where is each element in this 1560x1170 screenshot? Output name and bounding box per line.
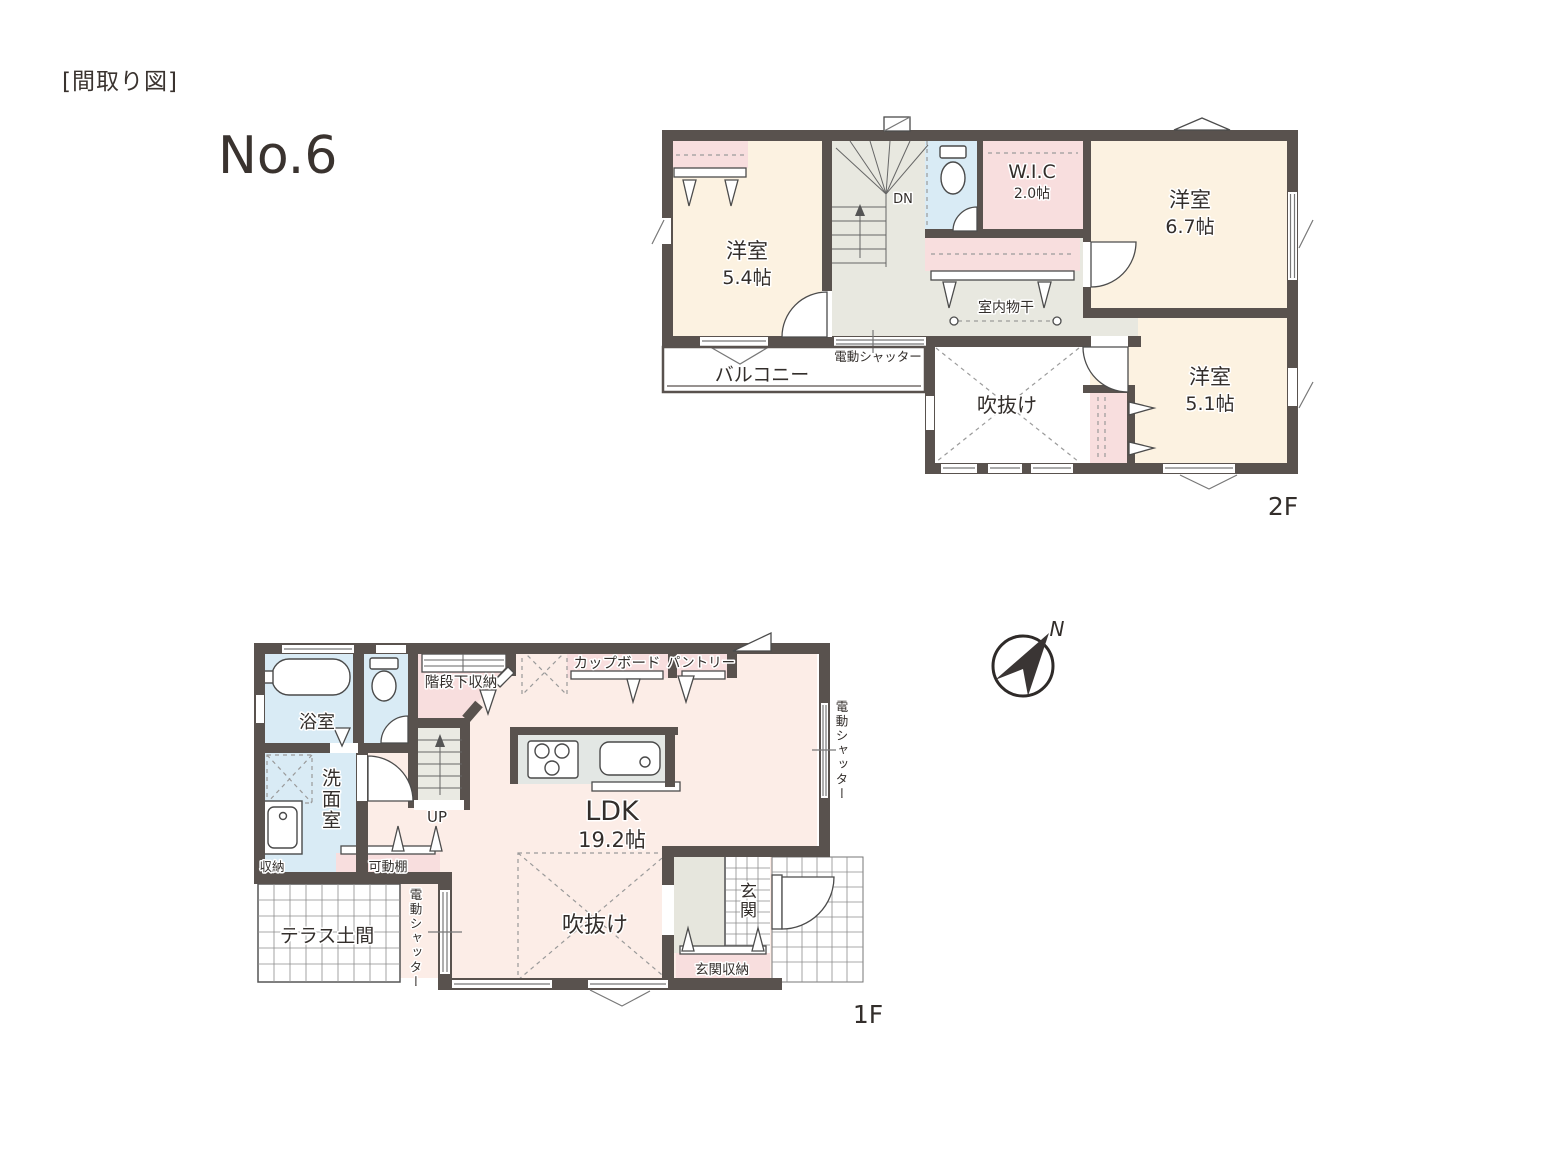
window-void-left	[926, 396, 934, 430]
windows-void-bottom	[941, 464, 1073, 473]
compass-north-label: N	[1050, 617, 1065, 641]
label-room-2f-se-name: 洋室	[1189, 365, 1231, 389]
roof-vent-icon-1f	[733, 633, 771, 651]
window-2f-east-side	[1288, 192, 1313, 280]
floor-tag-2f: 2F	[1268, 492, 1298, 521]
label-ldk-size: 19.2帖	[578, 828, 646, 852]
toilet-icon-2f	[940, 146, 966, 194]
compass-icon: N	[993, 617, 1065, 696]
label-shutter-terrace: 電動シャッター	[408, 888, 423, 990]
under-stair-shelf	[422, 654, 506, 672]
label-bath: 浴室	[299, 712, 335, 733]
label-storage: 収納	[259, 859, 284, 874]
label-room-2f-east-name: 洋室	[1169, 188, 1211, 212]
floorplan-page: [間取り図] No.6	[0, 0, 1560, 1170]
floor2-plan: 洋室 5.4帖 洋室 6.7帖 洋室 5.1帖 W.I.C 2.0帖 吹抜け バ…	[652, 117, 1313, 521]
label-void-1f: 吹抜け	[562, 913, 628, 938]
skylight-icon	[884, 117, 910, 131]
label-room-2f-west-size: 5.4帖	[722, 267, 771, 289]
label-shutter-2f: 電動シャッター	[834, 349, 922, 364]
window-2f-se-side	[1288, 368, 1313, 408]
bathtub-icon	[264, 659, 350, 695]
toilet-icon-1f	[370, 658, 398, 701]
stove-icon	[528, 741, 578, 778]
label-balcony: バルコニー	[715, 364, 810, 386]
label-shutter-east: 電動シャッター	[834, 700, 849, 802]
washing-machine-icon	[263, 801, 302, 854]
label-under-stair: 階段下収納	[425, 674, 498, 691]
label-entrance: 玄関	[736, 882, 756, 920]
label-indoor-drying: 室内物干	[978, 299, 1034, 316]
label-wic-name: W.I.C	[1008, 161, 1056, 183]
entrance-opening	[662, 885, 674, 935]
label-up: UP	[427, 808, 447, 826]
floorplan-drawing: 洋室 5.4帖 洋室 6.7帖 洋室 5.1帖 W.I.C 2.0帖 吹抜け バ…	[0, 0, 1560, 1170]
label-room-2f-west-name: 洋室	[726, 239, 768, 263]
label-room-2f-se-size: 5.1帖	[1185, 393, 1234, 415]
label-room-2f-east-size: 6.7帖	[1165, 216, 1214, 238]
label-dn: DN	[893, 192, 913, 207]
label-movable-shelf: 可動棚	[368, 860, 407, 875]
label-entrance-storage: 玄関収納	[695, 961, 749, 978]
label-washroom: 洗面室	[319, 768, 341, 831]
wic-room	[983, 138, 1083, 231]
label-cupboard: カップボード	[574, 655, 661, 672]
room-2f-se-closet	[1090, 393, 1127, 463]
label-void-2f: 吹抜け	[977, 393, 1037, 417]
entrance-hall	[674, 857, 725, 953]
window-2f-west-balcony	[700, 337, 768, 364]
floor1-plan: LDK 19.2帖 吹抜け 浴室 洗面室 収納 階段下収納 カップボード パント…	[254, 633, 883, 1029]
window-2f-west-side	[652, 218, 671, 244]
label-ldk-name: LDK	[585, 796, 640, 827]
window-2f-se-bottom	[1163, 464, 1237, 489]
label-pantry: パントリー	[667, 655, 735, 671]
label-terrace: テラス土間	[280, 925, 375, 947]
floor-tag-1f: 1F	[853, 1000, 883, 1029]
roof-vent-icon-2f	[1174, 118, 1230, 130]
label-wic-size: 2.0帖	[1014, 186, 1050, 202]
